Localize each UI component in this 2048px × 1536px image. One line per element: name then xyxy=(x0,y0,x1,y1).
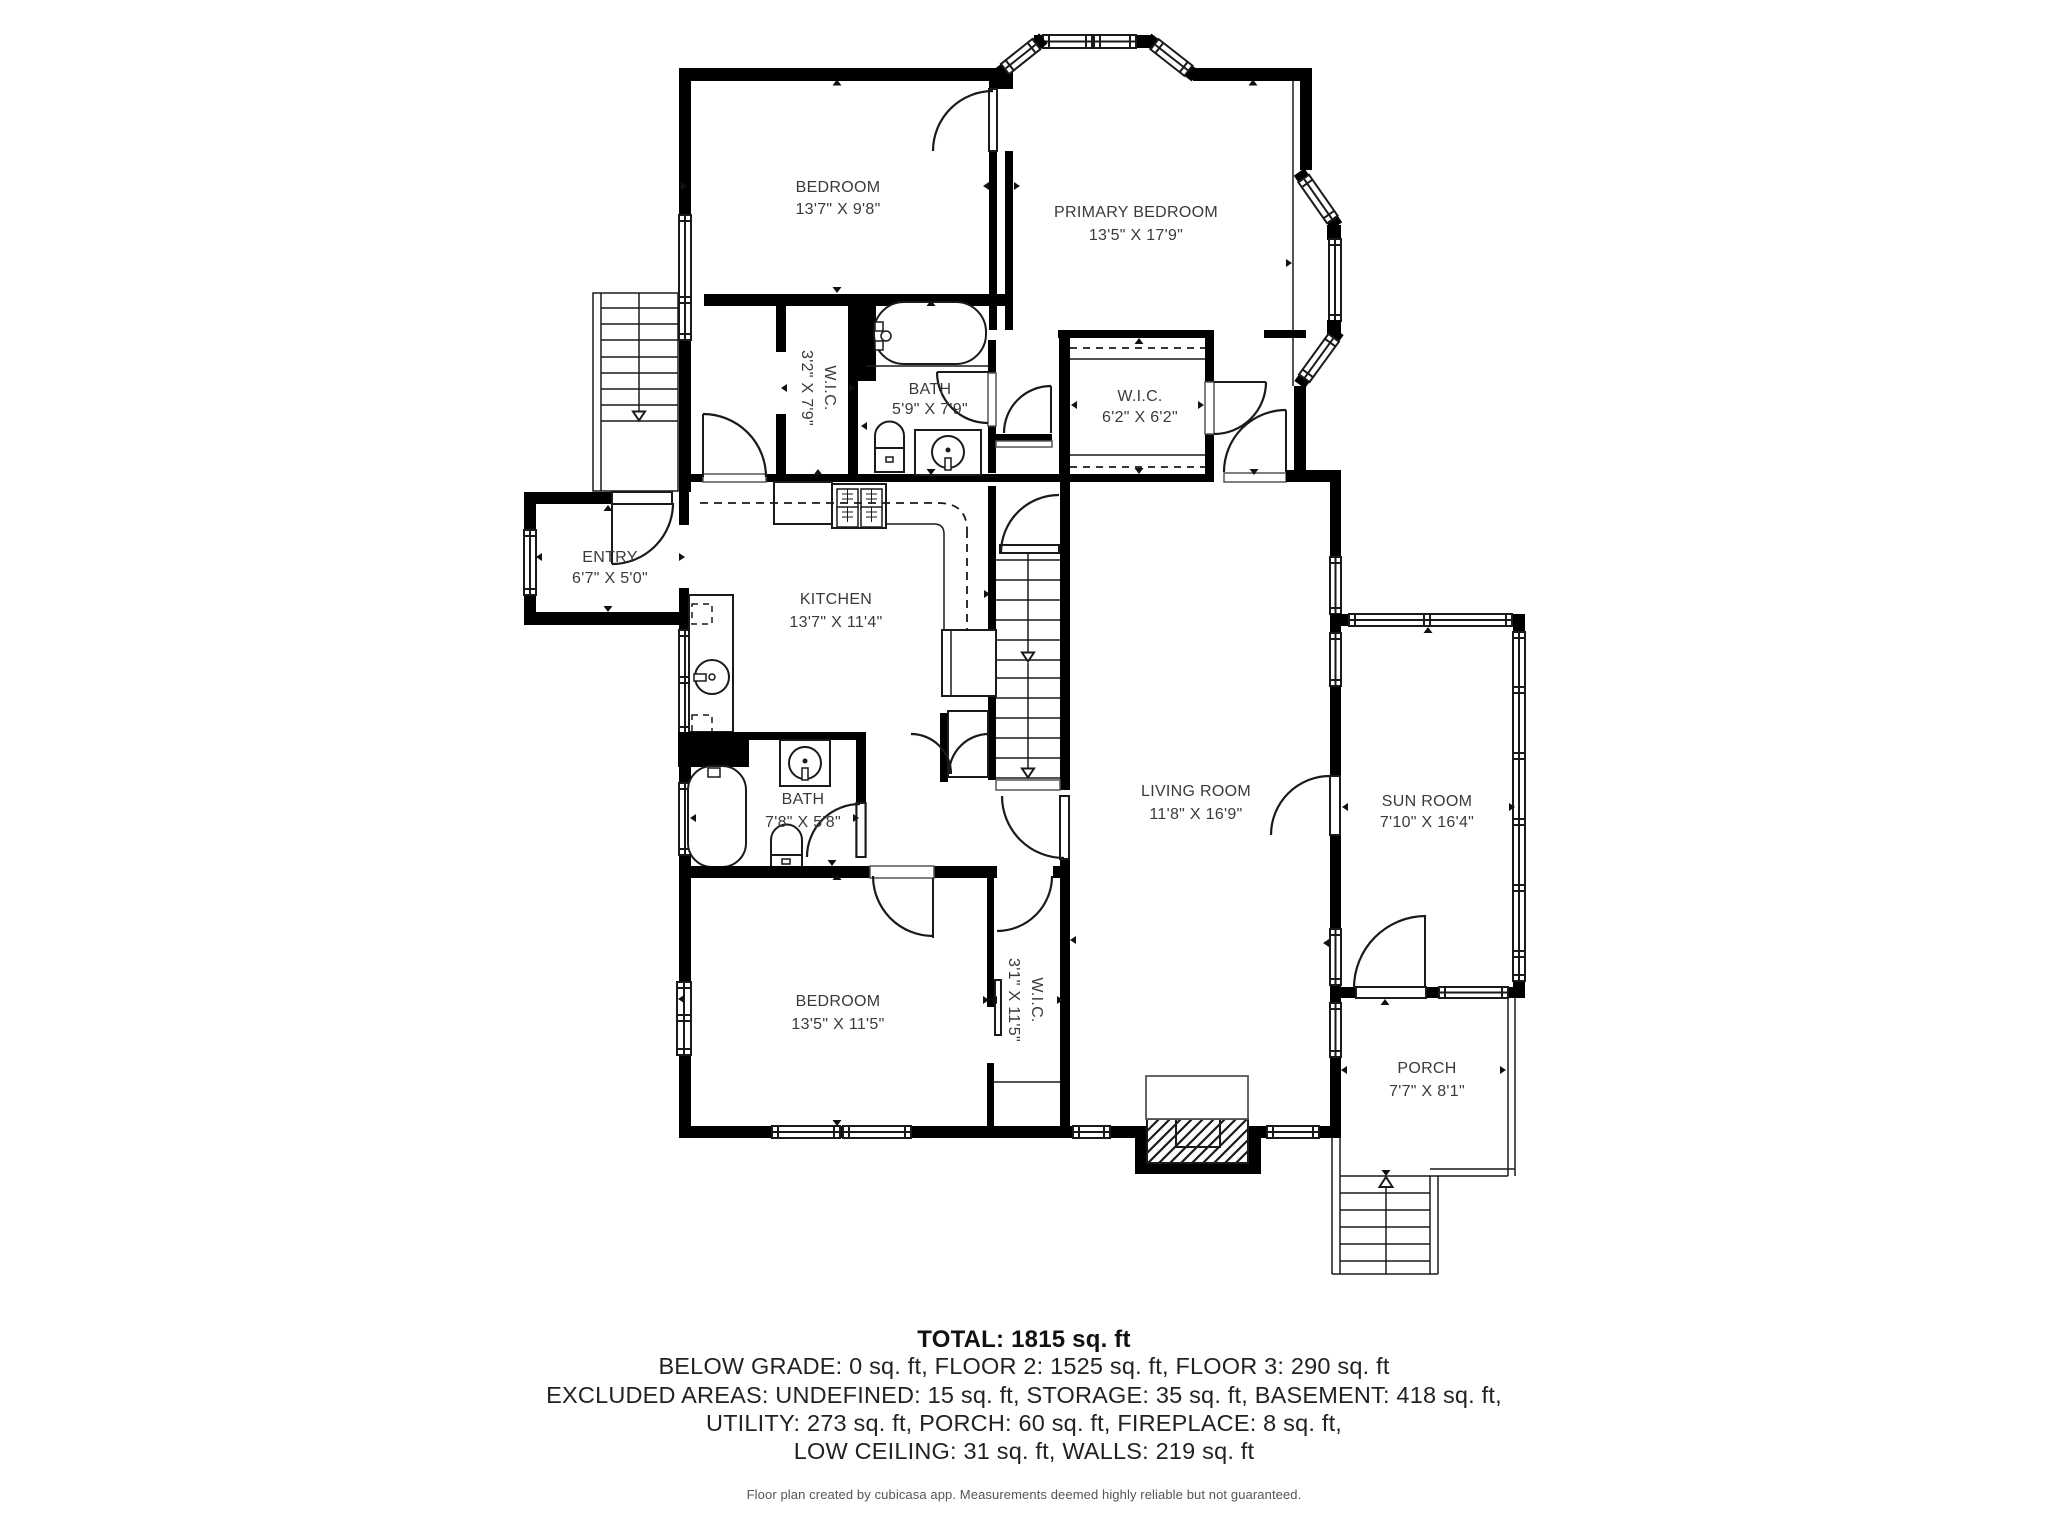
svg-text:W.I.C.: W.I.C. xyxy=(1028,977,1045,1022)
svg-text:ENTRY: ENTRY xyxy=(582,549,637,566)
svg-text:7'10" X 16'4": 7'10" X 16'4" xyxy=(1380,814,1474,831)
svg-text:7'7" X 8'1": 7'7" X 8'1" xyxy=(1389,1083,1465,1100)
svg-text:Floor plan created by cubicasa: Floor plan created by cubicasa app. Meas… xyxy=(747,1487,1302,1502)
svg-text:LOW CEILING: 31 sq. ft, WALLS:: LOW CEILING: 31 sq. ft, WALLS: 219 sq. f… xyxy=(794,1438,1255,1464)
svg-text:13'7" X 11'4": 13'7" X 11'4" xyxy=(789,614,882,631)
svg-text:13'5" X 11'5": 13'5" X 11'5" xyxy=(791,1016,884,1033)
svg-text:UTILITY: 273 sq. ft, PORCH: 60: UTILITY: 273 sq. ft, PORCH: 60 sq. ft, F… xyxy=(706,1410,1342,1436)
svg-text:TOTAL: 1815 sq. ft: TOTAL: 1815 sq. ft xyxy=(917,1326,1130,1353)
svg-text:BEDROOM: BEDROOM xyxy=(796,993,881,1010)
svg-text:SUN ROOM: SUN ROOM xyxy=(1382,793,1472,810)
svg-text:BEDROOM: BEDROOM xyxy=(796,179,881,196)
svg-text:13'7" X 9'8": 13'7" X 9'8" xyxy=(795,201,880,218)
svg-text:3'1" X 11'5": 3'1" X 11'5" xyxy=(1005,958,1022,1042)
svg-text:5'9" X 7'9": 5'9" X 7'9" xyxy=(892,401,968,418)
svg-text:PORCH: PORCH xyxy=(1397,1060,1456,1077)
svg-text:3'2" X 7'9": 3'2" X 7'9" xyxy=(798,350,815,426)
svg-text:LIVING ROOM: LIVING ROOM xyxy=(1141,783,1251,800)
svg-text:BATH: BATH xyxy=(909,381,952,398)
svg-text:BELOW GRADE: 0 sq. ft, FLOOR 2: BELOW GRADE: 0 sq. ft, FLOOR 2: 1525 sq.… xyxy=(658,1353,1389,1379)
svg-text:EXCLUDED AREAS: UNDEFINED: 15: EXCLUDED AREAS: UNDEFINED: 15 sq. ft, ST… xyxy=(546,1382,1502,1408)
svg-text:PRIMARY BEDROOM: PRIMARY BEDROOM xyxy=(1054,204,1218,221)
svg-text:W.I.C.: W.I.C. xyxy=(1117,388,1162,405)
svg-text:BATH: BATH xyxy=(782,791,825,808)
svg-text:7'8" X 5'8": 7'8" X 5'8" xyxy=(765,814,841,831)
svg-text:W.I.C.: W.I.C. xyxy=(821,365,838,410)
svg-text:13'5" X 17'9": 13'5" X 17'9" xyxy=(1089,227,1183,244)
svg-text:KITCHEN: KITCHEN xyxy=(800,591,872,608)
svg-text:11'8" X 16'9": 11'8" X 16'9" xyxy=(1149,806,1242,823)
svg-text:6'7" X 5'0": 6'7" X 5'0" xyxy=(572,570,648,587)
svg-text:6'2" X 6'2": 6'2" X 6'2" xyxy=(1102,409,1178,426)
